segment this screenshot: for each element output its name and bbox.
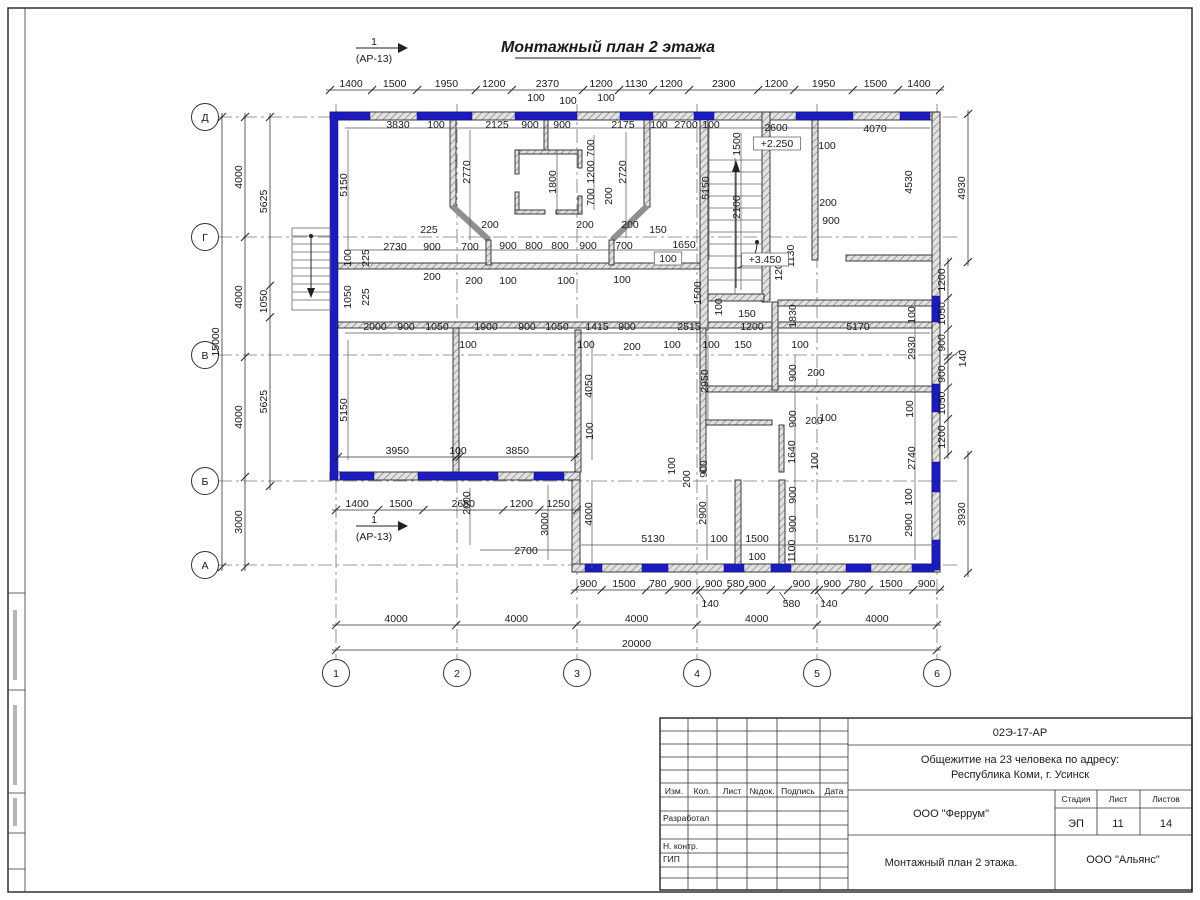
interior-wall bbox=[450, 120, 456, 207]
interior-wall bbox=[778, 300, 932, 306]
interior-wall bbox=[575, 330, 581, 472]
window bbox=[340, 472, 374, 480]
dim-label: 5130 bbox=[641, 533, 665, 545]
dim-label: 100 bbox=[710, 533, 728, 545]
dim-label: 4000 bbox=[625, 613, 649, 625]
dim-label: 5150 bbox=[700, 176, 712, 200]
window bbox=[796, 112, 853, 120]
dim-label: 900 bbox=[936, 334, 948, 352]
partition bbox=[515, 150, 519, 174]
dim-label: 2730 bbox=[383, 241, 407, 253]
window bbox=[932, 462, 940, 492]
dim-label: 2930 bbox=[906, 336, 918, 360]
dim-label: 100 bbox=[663, 339, 681, 351]
col-kol: Кол. bbox=[694, 786, 711, 796]
dim-label: 200 bbox=[603, 187, 615, 205]
dim-label: 900 bbox=[793, 578, 811, 590]
interior-wall bbox=[846, 255, 932, 261]
glazed-west-wall bbox=[330, 112, 338, 480]
project-name-line2: Республика Коми, г. Усинск bbox=[951, 769, 1089, 781]
dim-label: 4070 bbox=[863, 123, 887, 135]
dim-label: 5625 bbox=[258, 190, 270, 214]
dim-label: 100 bbox=[557, 275, 575, 287]
external-stair bbox=[292, 228, 330, 310]
dim-label: 800 bbox=[525, 240, 543, 252]
axis-label-А: А bbox=[201, 560, 208, 572]
dim-label: 4000 bbox=[233, 285, 245, 309]
dim-label: 225 bbox=[420, 224, 438, 236]
dim-label: 100 bbox=[702, 339, 720, 351]
dim-label: 100 bbox=[809, 452, 821, 470]
dim-label: 900 bbox=[618, 321, 636, 333]
dim-label: 3830 bbox=[386, 119, 410, 131]
dim-label: 1200 bbox=[740, 321, 764, 333]
dim-label: 20000 bbox=[622, 638, 651, 650]
axis-label-1: 1 bbox=[333, 668, 339, 680]
dim-label: 100 bbox=[597, 92, 615, 104]
dim-label: 3950 bbox=[386, 445, 410, 457]
dim-label: 2000 bbox=[461, 491, 473, 515]
interior-wall bbox=[644, 120, 650, 207]
dim-label: 1200 bbox=[765, 78, 789, 90]
dim-label: 780 bbox=[649, 578, 667, 590]
dim-label: 1800 bbox=[547, 170, 559, 194]
dim-label: 4530 bbox=[903, 170, 915, 194]
dim-label: 1950 bbox=[435, 78, 459, 90]
partition bbox=[578, 150, 582, 168]
window bbox=[846, 564, 871, 572]
dim-label: 1200 bbox=[936, 425, 948, 449]
axis-label-Д: Д bbox=[201, 112, 208, 124]
dim-label: (АР-13) bbox=[356, 531, 392, 543]
dim-label: 1640 bbox=[786, 440, 798, 464]
dim-label: 100 bbox=[342, 249, 354, 267]
dim-label: 1500 bbox=[389, 498, 413, 510]
dim-label: 100 bbox=[427, 119, 445, 131]
dim-label: 1415 bbox=[585, 321, 609, 333]
dim-label: 150 bbox=[734, 339, 752, 351]
doc-number: 02Э-17-АР bbox=[993, 727, 1047, 739]
level-mark: +2.250 bbox=[761, 138, 794, 150]
dim-label: 2100 bbox=[731, 195, 743, 219]
interior-wall bbox=[486, 240, 491, 265]
axis-label-4: 4 bbox=[694, 668, 700, 680]
dim-label: 5150 bbox=[338, 398, 350, 422]
dim-label: 1200 bbox=[659, 78, 683, 90]
interior-wall bbox=[338, 263, 700, 269]
dim-label: 4000 bbox=[505, 613, 529, 625]
page-title: Монтажный план 2 этажа bbox=[501, 39, 715, 56]
partition bbox=[515, 150, 582, 154]
dim-label: 140 bbox=[701, 598, 719, 610]
dim-label: 900 bbox=[822, 215, 840, 227]
sheets-label: Листов bbox=[1152, 794, 1180, 804]
dim-label: 100 bbox=[449, 445, 467, 457]
dim-label: 900 bbox=[698, 460, 710, 478]
dim-label: 900 bbox=[749, 578, 767, 590]
dim-label: 5625 bbox=[258, 390, 270, 414]
dim-label: 4000 bbox=[745, 613, 769, 625]
dim-label: 5170 bbox=[846, 321, 870, 333]
sheets-value: 14 bbox=[1160, 818, 1172, 830]
axis-label-2: 2 bbox=[454, 668, 460, 680]
dim-label: 900 bbox=[787, 410, 799, 428]
project-name-line1: Общежитие на 23 человека по адресу: bbox=[921, 754, 1119, 766]
dim-label: 100 bbox=[650, 119, 668, 131]
dim-label: 700 bbox=[585, 139, 597, 157]
stage-value: ЭП bbox=[1068, 818, 1084, 830]
dim-label: 1050 bbox=[936, 391, 948, 415]
dim-label: 100 bbox=[903, 488, 915, 506]
contractor-org: ООО "Альянс" bbox=[1086, 854, 1160, 866]
dim-label: 2720 bbox=[617, 160, 629, 184]
dim-label: 1500 bbox=[864, 78, 888, 90]
dim-label: 1400 bbox=[345, 498, 369, 510]
dim-label: 140 bbox=[957, 350, 969, 368]
section-marker-top bbox=[356, 43, 408, 53]
dim-label: 1 bbox=[371, 514, 377, 526]
interior-wall bbox=[779, 425, 784, 472]
dim-label: 100 bbox=[713, 298, 725, 316]
window bbox=[336, 112, 370, 120]
interior-wall bbox=[706, 420, 772, 425]
dim-label: 700 bbox=[461, 241, 479, 253]
dim-label: 900 bbox=[579, 240, 597, 252]
dim-label: 780 bbox=[848, 578, 866, 590]
dim-label: 150 bbox=[738, 308, 756, 320]
axis-label-Г: Г bbox=[202, 232, 208, 244]
dim-label: 1500 bbox=[383, 78, 407, 90]
stage-label: Стадия bbox=[1062, 794, 1091, 804]
dim-label: 2950 bbox=[699, 369, 711, 393]
dim-label: 100 bbox=[818, 140, 836, 152]
dim-label: (АР-13) bbox=[356, 53, 392, 65]
dim-label: 5150 bbox=[338, 173, 350, 197]
dim-label: 140 bbox=[820, 598, 838, 610]
window bbox=[418, 472, 498, 480]
axis-label-5: 5 bbox=[814, 668, 820, 680]
dim-label: 1200 bbox=[510, 498, 534, 510]
dim-label: 2370 bbox=[536, 78, 560, 90]
interior-wall bbox=[812, 120, 818, 260]
dim-label: 1200 bbox=[589, 78, 613, 90]
window bbox=[912, 564, 934, 572]
dim-label: 225 bbox=[360, 249, 372, 267]
dim-label: 1200 bbox=[585, 160, 597, 184]
level-mark: +3.450 bbox=[749, 254, 782, 266]
dim-label: 2700 bbox=[514, 545, 538, 557]
axis-label-В: В bbox=[201, 350, 208, 362]
dim-label: 1050 bbox=[342, 285, 354, 309]
dim-label: 2175 bbox=[611, 119, 635, 131]
dim-label: 900 bbox=[936, 365, 948, 383]
stamp-text-placeholder bbox=[13, 610, 17, 680]
dim-label: 2300 bbox=[712, 78, 736, 90]
axis-label-6: 6 bbox=[934, 668, 940, 680]
dim-label: 700 bbox=[615, 240, 633, 252]
dim-label: 15000 bbox=[210, 327, 222, 356]
dim-label: 100 bbox=[702, 119, 720, 131]
dim-label: 1050 bbox=[936, 302, 948, 326]
dim-label: 900 bbox=[397, 321, 415, 333]
dim-label: 4000 bbox=[233, 165, 245, 189]
dim-label: 100 bbox=[613, 274, 631, 286]
sheet-value: 11 bbox=[1112, 818, 1123, 830]
dim-label: 200 bbox=[819, 197, 837, 209]
dim-label: 4000 bbox=[865, 613, 889, 625]
axis-label-3: 3 bbox=[574, 668, 580, 680]
dim-label: 100 bbox=[584, 422, 596, 440]
axis-label-Б: Б bbox=[202, 476, 209, 488]
dim-label: 200 bbox=[423, 271, 441, 283]
dim-label: 200 bbox=[465, 275, 483, 287]
floor-plan-drawing: Монтажный план 2 этажа ДГВБА123456 bbox=[0, 0, 1200, 900]
interior-wall bbox=[772, 302, 778, 390]
dim-label: 900 bbox=[705, 578, 723, 590]
partition bbox=[578, 196, 582, 214]
dim-label: 225 bbox=[360, 288, 372, 306]
dim-label: 900 bbox=[580, 578, 598, 590]
arrow-head-icon bbox=[307, 288, 315, 298]
dim-label: 900 bbox=[521, 119, 539, 131]
dim-label: 100 bbox=[559, 95, 577, 107]
dim-label: 200 bbox=[681, 470, 693, 488]
dim-label: 1100 bbox=[786, 540, 798, 563]
dim-label: 2515 bbox=[677, 321, 701, 333]
arrow-head-icon bbox=[732, 160, 740, 172]
dim-label: 1 bbox=[371, 36, 377, 48]
col-list: Лист bbox=[723, 786, 742, 796]
dim-label: 580 bbox=[783, 598, 801, 610]
dim-label: 4000 bbox=[233, 405, 245, 429]
row-gip: ГИП bbox=[663, 854, 680, 864]
dim-label: 200 bbox=[621, 219, 639, 231]
dim-label: 2600 bbox=[764, 122, 788, 134]
dim-label: 100 bbox=[577, 339, 595, 351]
stamp-text-placeholder bbox=[13, 798, 17, 826]
dim-label: 100 bbox=[527, 92, 545, 104]
dim-label: 100 bbox=[791, 339, 809, 351]
dim-label: 3000 bbox=[539, 512, 551, 536]
dim-label: 4050 bbox=[583, 374, 595, 398]
dim-label: 100 bbox=[659, 253, 677, 265]
dim-label: 1130 bbox=[625, 78, 648, 90]
dim-label: 2125 bbox=[485, 119, 509, 131]
dim-label: 900 bbox=[787, 515, 799, 533]
window bbox=[771, 564, 791, 572]
row-nkontr: Н. контр. bbox=[663, 841, 698, 851]
dim-label: 1500 bbox=[731, 132, 743, 156]
window bbox=[724, 564, 744, 572]
section-marker-bottom bbox=[356, 521, 408, 531]
stamp-text-placeholder bbox=[13, 705, 17, 785]
dim-label: 1900 bbox=[474, 321, 498, 333]
exterior-wall bbox=[572, 564, 940, 572]
dim-label: 580 bbox=[727, 578, 745, 590]
dim-label: 900 bbox=[824, 578, 842, 590]
dim-label: 100 bbox=[459, 339, 477, 351]
exterior-wall bbox=[572, 480, 580, 572]
dim-label: 1050 bbox=[258, 290, 270, 314]
dim-label: 150 bbox=[649, 224, 667, 236]
window bbox=[642, 564, 668, 572]
title-block: 02Э-17-АР Общежитие на 23 человека по ад… bbox=[660, 718, 1192, 890]
dim-label: 5170 bbox=[848, 533, 872, 545]
dim-label: 900 bbox=[674, 578, 692, 590]
partition bbox=[544, 120, 548, 150]
interior-wall bbox=[779, 480, 785, 566]
dim-label: 900 bbox=[499, 240, 517, 252]
dim-label: 1500 bbox=[879, 578, 903, 590]
section-arrow-icon bbox=[398, 521, 408, 531]
dim-label: 800 bbox=[551, 240, 569, 252]
dim-label: 3000 bbox=[233, 510, 245, 534]
dim-label: 100 bbox=[819, 412, 837, 424]
interior-wall bbox=[609, 240, 614, 265]
dim-label: 900 bbox=[787, 486, 799, 504]
dim-label: 900 bbox=[918, 578, 936, 590]
dim-label: 900 bbox=[518, 321, 536, 333]
dim-label: 100 bbox=[666, 457, 678, 475]
dim-label: 100 bbox=[904, 400, 916, 418]
dim-label: 2000 bbox=[363, 321, 387, 333]
col-podpis: Подпись bbox=[781, 786, 815, 796]
sheet-title: Монтажный план 2 этажа. bbox=[885, 857, 1018, 869]
dim-label: 1200 bbox=[482, 78, 506, 90]
dim-label: 2900 bbox=[697, 501, 709, 525]
dim-label: 1830 bbox=[787, 304, 799, 328]
row-razrabotal: Разработал bbox=[663, 813, 709, 823]
window bbox=[534, 472, 564, 480]
dim-label: 100 bbox=[499, 275, 517, 287]
dim-label: 2770 bbox=[461, 160, 473, 184]
interior-wall bbox=[706, 386, 932, 392]
interior-wall bbox=[735, 480, 741, 566]
dim-label: 1050 bbox=[545, 321, 569, 333]
dim-label: 1950 bbox=[812, 78, 836, 90]
dim-label: 900 bbox=[553, 119, 571, 131]
dim-label: 200 bbox=[576, 219, 594, 231]
window bbox=[585, 564, 602, 572]
dim-label: 1400 bbox=[339, 78, 363, 90]
dim-label: 1500 bbox=[612, 578, 636, 590]
drawing-sheet: Монтажный план 2 этажа ДГВБА123456 bbox=[0, 0, 1200, 900]
window bbox=[900, 112, 930, 120]
dim-label: 2740 bbox=[906, 446, 918, 470]
dim-label: 900 bbox=[787, 364, 799, 382]
dim-label: 3850 bbox=[506, 445, 530, 457]
section-arrow-icon bbox=[398, 43, 408, 53]
dim-label: 3930 bbox=[956, 502, 968, 526]
dim-label: 1650 bbox=[672, 239, 696, 251]
dim-label: 2700 bbox=[674, 119, 698, 131]
dim-label: 1500 bbox=[692, 281, 704, 305]
sheet-label: Лист bbox=[1109, 794, 1128, 804]
dim-label: 200 bbox=[807, 367, 825, 379]
partition bbox=[515, 210, 545, 214]
col-doc: №док. bbox=[750, 786, 775, 796]
dim-label: 700 bbox=[585, 188, 597, 206]
col-izm: Изм. bbox=[665, 786, 683, 796]
dim-label: 200 bbox=[481, 219, 499, 231]
dim-label: 1250 bbox=[546, 498, 570, 510]
staircase bbox=[708, 158, 762, 294]
designer-org: ООО "Феррум" bbox=[913, 808, 989, 820]
dim-label: 100 bbox=[906, 306, 918, 324]
dim-label: 2900 bbox=[903, 513, 915, 537]
dim-label: 1500 bbox=[745, 533, 769, 545]
col-data: Дата bbox=[825, 786, 844, 796]
dim-label: 1050 bbox=[425, 321, 449, 333]
dim-label: 1200 bbox=[936, 268, 948, 292]
dim-label: 900 bbox=[423, 241, 441, 253]
dim-label: 1400 bbox=[907, 78, 931, 90]
dim-label: 200 bbox=[623, 341, 641, 353]
dim-label: 4930 bbox=[956, 176, 968, 200]
dim-label: 100 bbox=[748, 551, 766, 563]
dim-label: 4000 bbox=[384, 613, 408, 625]
dim-label: 4000 bbox=[583, 502, 595, 526]
